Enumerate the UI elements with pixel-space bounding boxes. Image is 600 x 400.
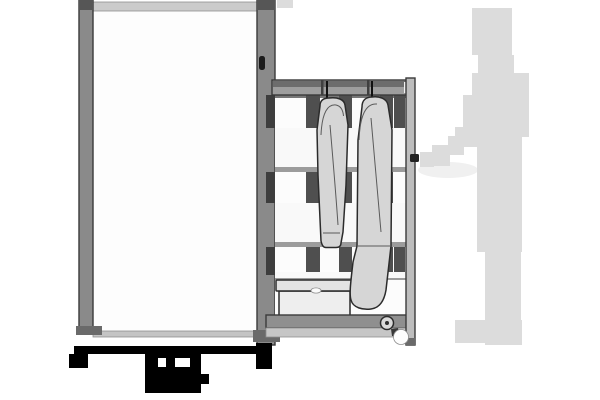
person-hips-body — [477, 136, 522, 252]
cabinet-top-rail-extension — [277, 0, 293, 8]
person-rear-leg — [485, 320, 522, 345]
rack-rail-divider — [321, 80, 324, 95]
rack-rear-post-right-lower — [394, 247, 405, 273]
person-head — [472, 8, 512, 55]
base-center-block — [145, 354, 201, 393]
cabinet-latch — [259, 56, 265, 70]
pullout-wardrobe-diagram — [0, 0, 600, 400]
cabinet-left-post-foot — [76, 326, 102, 335]
base-foot-left — [69, 354, 88, 368]
pull-handle — [410, 154, 419, 162]
cabinet-left-post — [79, 0, 93, 333]
rack-left-shadow-segments — [266, 95, 275, 275]
rack-rail-divider — [367, 80, 370, 95]
storage-box — [276, 280, 353, 317]
base-center-step — [201, 374, 209, 384]
cabinet-left-post-cap — [79, 0, 93, 10]
rack-left-shadow — [266, 172, 275, 203]
person-neck — [478, 55, 514, 74]
rack-top-rail-dark-strip — [273, 81, 411, 87]
cabinet-top-rail — [91, 2, 259, 11]
base-bar — [74, 346, 271, 354]
base-block-notch-right — [175, 358, 190, 367]
storage-box-handle-hole — [311, 288, 321, 293]
person-forearm — [432, 145, 450, 166]
person-hand — [420, 152, 434, 167]
person-front-foot — [455, 320, 486, 343]
person-arm-mid — [448, 136, 464, 155]
pulley-center — [385, 321, 389, 325]
wardrobe-diagram-canvas — [0, 0, 600, 400]
rack-left-shadow — [266, 247, 275, 275]
rack-right-post — [406, 78, 415, 345]
person-torso — [472, 73, 529, 137]
rack-bottom-band — [266, 328, 413, 337]
storage-box-body — [279, 291, 350, 317]
rack-left-shadow — [266, 95, 275, 128]
cabinet-interior-panel — [93, 11, 257, 333]
rack-rear-post-right-upper — [394, 95, 405, 128]
person-shoulder — [463, 95, 474, 129]
cabinet-bottom-sill — [93, 331, 257, 337]
base-block-notch-left — [158, 358, 166, 367]
garment-left — [317, 98, 348, 248]
cabinet-right-post-cap — [257, 0, 275, 10]
base-foot-right — [256, 343, 272, 369]
caster-wheel — [394, 330, 409, 345]
person-legs — [485, 252, 521, 321]
